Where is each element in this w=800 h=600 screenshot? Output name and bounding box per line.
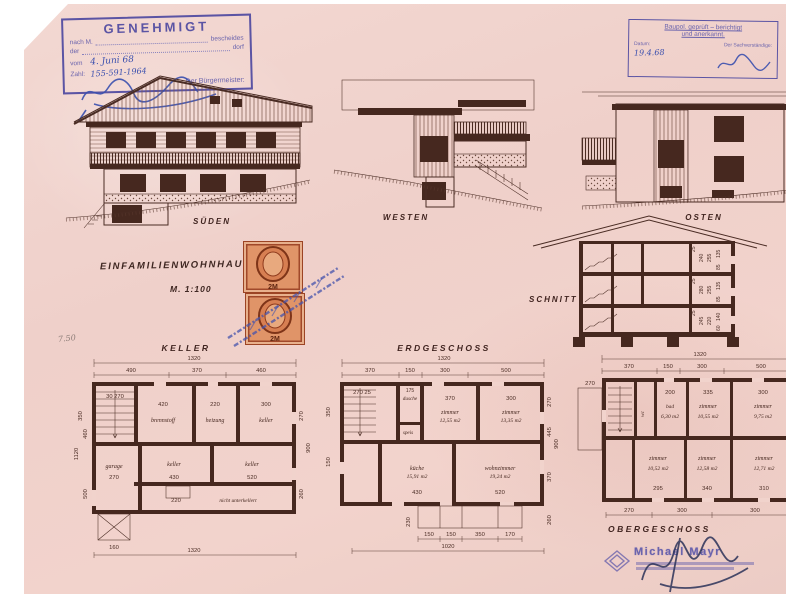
- attic-window: [210, 96, 220, 104]
- window-opening: [392, 502, 404, 506]
- window-opening: [292, 468, 296, 480]
- interior-wall: [689, 244, 692, 334]
- step: [166, 486, 190, 498]
- baupol-line2: und anerkannt.: [634, 30, 772, 39]
- balcony-railing: [454, 122, 526, 134]
- dim-label: 1120: [74, 448, 80, 460]
- dim-label: 460: [256, 368, 266, 374]
- window-opening: [540, 460, 544, 474]
- bottom-slab: [579, 332, 735, 337]
- wall: [92, 442, 296, 446]
- eave-band: [358, 108, 462, 115]
- wall: [378, 444, 382, 502]
- room-label: zimmer: [697, 456, 716, 462]
- floor-slab: [579, 304, 735, 308]
- dim-label: 1020: [442, 544, 455, 550]
- erdgeschoss-plan: ERDGESCHOSS 1320 370 150 300 500 270 25 …: [322, 342, 566, 572]
- room-label: zimmer: [648, 456, 667, 462]
- window: [136, 132, 156, 148]
- dim-label: 520: [247, 475, 257, 481]
- interior-wall: [641, 244, 644, 272]
- stairs: [608, 386, 632, 432]
- dim-label: 30 270: [106, 394, 124, 400]
- roof: [74, 76, 312, 122]
- facade: [616, 104, 784, 202]
- window-opening: [652, 498, 664, 502]
- room-label: zimmer: [753, 404, 772, 410]
- eave-band: [612, 104, 788, 110]
- architect-emblem-icon: [602, 548, 632, 574]
- drawing-scale: M. 1:100: [170, 284, 212, 294]
- wall: [134, 386, 138, 446]
- room-label: nicht unterkellert: [219, 498, 257, 504]
- east-elevation: OSTEN: [578, 82, 800, 224]
- window-opening: [292, 412, 296, 424]
- base-band: [454, 154, 526, 167]
- south-elevation: SÜDEN: [60, 62, 322, 232]
- basement-window: [660, 186, 682, 198]
- window-opening: [500, 502, 514, 506]
- dim-label: 520: [495, 490, 505, 496]
- section-label: SCHNITT: [529, 295, 578, 304]
- window-opening: [492, 382, 504, 386]
- wall: [794, 378, 798, 502]
- dim-label: 900: [554, 439, 560, 449]
- room-area: 12,58 m2: [697, 466, 718, 472]
- dim-label: 220: [210, 402, 220, 408]
- dim-label: 370: [624, 364, 634, 370]
- room-label: garage: [106, 464, 123, 470]
- window-opening: [340, 462, 344, 474]
- attic-floor-slab: [579, 241, 735, 244]
- wall: [634, 382, 637, 436]
- architect-stamp: Michael Mayr: [602, 544, 800, 596]
- dim-label: 295: [653, 486, 663, 492]
- door-opening: [440, 502, 452, 506]
- dim-label: 270: [624, 508, 634, 514]
- baupol-handwritten-date: 19.4.68: [634, 48, 665, 58]
- room-area: 12,71 m2: [754, 466, 775, 472]
- dim-label: 1320: [188, 356, 201, 362]
- dim-label: 1320: [438, 356, 451, 362]
- dim-label: 270 25: [353, 390, 371, 396]
- window: [106, 132, 126, 148]
- room-label: keller: [167, 462, 181, 468]
- sachverstaendiger-label: Der Sachverständige:: [724, 42, 772, 49]
- window-opening: [758, 498, 770, 502]
- wall: [134, 482, 296, 486]
- balcony: [578, 388, 602, 450]
- dim-label: 430: [169, 475, 179, 481]
- dim-line: [606, 512, 798, 518]
- window: [226, 132, 246, 148]
- window: [714, 116, 744, 142]
- dim-label: 270: [299, 411, 305, 421]
- dim-label: 430: [412, 490, 422, 496]
- terrace: [418, 506, 522, 528]
- balcony-slab: [454, 134, 530, 141]
- window-opening: [432, 382, 444, 386]
- window: [160, 174, 186, 192]
- wall: [686, 382, 689, 436]
- dim-label: 230: [406, 517, 412, 527]
- scan-canvas: GENEHMIGT nach M. bescheides der dorf vo…: [0, 0, 800, 600]
- window-opening: [731, 256, 735, 264]
- wall: [236, 386, 240, 442]
- dim-label: 25: [691, 246, 697, 252]
- dim-label: 170: [505, 532, 515, 538]
- dim-label: 220: [171, 498, 181, 504]
- wall: [452, 444, 456, 502]
- room-label: zimmer: [440, 410, 459, 416]
- genehmigt-line1-label: nach M.: [70, 39, 93, 47]
- wall: [138, 446, 142, 510]
- plan-title: ERDGESCHOSS: [397, 343, 491, 353]
- room-area: 12,55 m2: [440, 418, 461, 424]
- window-opening: [731, 288, 735, 296]
- dim-label: 490: [126, 368, 136, 374]
- dim-label: 25: [691, 310, 697, 316]
- ground-hatch: [334, 172, 542, 210]
- stoop-cross: [98, 514, 130, 540]
- dim-label: 135: [716, 281, 722, 290]
- balcony-slab: [582, 160, 616, 165]
- dim-label: 300: [750, 508, 760, 514]
- window: [658, 140, 684, 168]
- room-label: zimmer: [754, 456, 773, 462]
- balcony-railing: [582, 138, 616, 160]
- architect-signature: [630, 536, 760, 594]
- wall: [396, 386, 400, 440]
- sachverstaendiger-signature: [714, 52, 774, 78]
- room-label: wc: [640, 410, 646, 417]
- dim-label: 85: [716, 296, 722, 302]
- room-label: küche: [410, 466, 424, 472]
- dim-label: 200: [665, 390, 675, 396]
- room-label: keller: [245, 462, 259, 468]
- dim-label: 335: [703, 390, 713, 396]
- dim-label: 350: [326, 407, 332, 417]
- dim-label: 60: [716, 325, 722, 331]
- room-area: 13,35 m2: [501, 418, 522, 424]
- section-drawing: 25 240 255 135 85 25 280 255 135 85 25 2…: [521, 212, 783, 352]
- datum-label: Datum:: [634, 41, 650, 47]
- wall: [340, 440, 544, 444]
- room-area: 9,75 m2: [754, 414, 772, 420]
- dim-label: 310: [759, 486, 769, 492]
- keller-plan: KELLER 1320 490 370 460 30 270 bren: [74, 342, 314, 572]
- dim-label: 255: [707, 253, 713, 262]
- genehmigt-line2-label: der: [70, 48, 80, 55]
- left-wall: [579, 241, 583, 337]
- wall: [396, 422, 424, 425]
- window-opening: [794, 462, 798, 474]
- dim-label: 370: [365, 368, 375, 374]
- dim-label: 460: [83, 429, 89, 439]
- genehmigt-title: GENEHMIGT: [69, 18, 243, 38]
- window: [166, 132, 186, 148]
- ground-line: [582, 188, 800, 206]
- dim-label: 160: [109, 545, 119, 551]
- dim-label: 150: [446, 532, 456, 538]
- dim-label: 25: [691, 278, 697, 284]
- room-label: zimmer: [501, 410, 520, 416]
- dim-label: 1320: [188, 548, 201, 554]
- wall: [730, 440, 733, 498]
- terrace-steps: [440, 506, 498, 528]
- window-opening: [260, 382, 272, 386]
- wall: [632, 440, 635, 498]
- dim-label: 85: [716, 264, 722, 270]
- room-label: dusche: [403, 396, 418, 402]
- window-opening: [752, 378, 764, 382]
- dim-label: 150: [424, 532, 434, 538]
- dim-label: 300: [697, 364, 707, 370]
- dim-label: 370: [192, 368, 202, 374]
- window: [714, 156, 744, 182]
- room-label: wohnzimmer: [485, 466, 516, 472]
- base-band: [586, 176, 616, 190]
- window-opening: [702, 498, 714, 502]
- window: [196, 132, 216, 148]
- wall: [292, 382, 296, 514]
- plan-title: KELLER: [162, 343, 211, 353]
- dim-label: 270: [109, 475, 119, 481]
- dim-label: 135: [716, 249, 722, 258]
- room-area: 10,55 m2: [698, 414, 719, 420]
- dim-label: 350: [475, 532, 485, 538]
- eave-band: [86, 122, 302, 127]
- wall: [92, 510, 296, 514]
- genehmigt-line1-tail: bescheides: [211, 35, 244, 43]
- room-area: 15,91 m2: [407, 474, 428, 480]
- dim-label: 900: [306, 443, 312, 453]
- wall: [420, 386, 424, 440]
- window: [120, 174, 146, 192]
- attic-window: [232, 99, 242, 107]
- dim-label: 270: [585, 381, 595, 387]
- window: [256, 132, 276, 148]
- room-label: keller: [259, 418, 273, 424]
- dim-label: 140: [716, 312, 722, 321]
- roof-edge-lines: [582, 92, 800, 96]
- wall: [654, 382, 657, 436]
- dim-label: 260: [547, 515, 553, 525]
- window-opening: [208, 382, 218, 386]
- genehmigt-line2-tail: dorf: [233, 44, 244, 51]
- room-label: speis: [403, 430, 413, 436]
- floor-slab: [579, 272, 735, 276]
- dim-label: 1320: [694, 352, 707, 358]
- dim-label: 370: [547, 472, 553, 482]
- obergeschoss-plan: 1320 370 150 300 500 270 wc: [572, 342, 800, 562]
- dim-label: 300: [440, 368, 450, 374]
- south-label: SÜDEN: [193, 217, 231, 226]
- dim-label: 370: [445, 396, 455, 402]
- window-opening: [154, 382, 166, 386]
- garage-door-opening: [92, 490, 96, 506]
- window-opening: [540, 412, 544, 424]
- dim-label: 240: [699, 253, 705, 262]
- dim-label: 500: [501, 368, 511, 374]
- wall: [210, 446, 214, 482]
- balcony-railing: [90, 153, 300, 164]
- dim-label: 150: [326, 457, 332, 467]
- dim-label: 220: [707, 316, 713, 325]
- dim-label: 150: [405, 368, 415, 374]
- window: [420, 136, 448, 162]
- room-label: bad: [666, 404, 674, 410]
- window-opening: [794, 402, 798, 414]
- window-opening: [664, 378, 674, 382]
- dim-label: 150: [663, 364, 673, 370]
- dim-label: 340: [702, 486, 712, 492]
- dim-label: 175: [406, 388, 415, 394]
- dim-label: 500: [756, 364, 766, 370]
- wall: [730, 382, 733, 436]
- dim-label: 280: [699, 285, 705, 294]
- dim-label: 300: [261, 402, 271, 408]
- balcony-slab: [90, 164, 300, 169]
- dim-label: 270: [547, 397, 553, 407]
- wall: [684, 440, 687, 498]
- garage-door: [112, 205, 142, 223]
- dim-label: 445: [547, 427, 553, 437]
- room-label: zimmer: [698, 404, 717, 410]
- wall: [476, 386, 480, 440]
- dim-label: 300: [677, 508, 687, 514]
- dim-label: 255: [707, 285, 713, 294]
- window: [240, 174, 266, 192]
- dim-label: 300: [506, 396, 516, 402]
- blueprint-paper: GENEHMIGT nach M. bescheides der dorf vo…: [24, 4, 786, 594]
- room-area: 6,30 m2: [661, 414, 679, 420]
- dim-label: 300: [758, 390, 768, 396]
- window-opening: [700, 378, 712, 382]
- window: [200, 174, 226, 192]
- dim-label: 245: [699, 316, 705, 325]
- dim-label: 500: [83, 489, 89, 499]
- room-label: brennstoff: [151, 417, 176, 424]
- window-opening: [731, 316, 735, 324]
- plan-title: OBERGESCHOSS: [608, 524, 711, 534]
- room-label: heizung: [206, 418, 225, 424]
- dim-label: 260: [299, 489, 305, 499]
- wall: [192, 386, 196, 442]
- cancellation-stamp: [220, 242, 350, 350]
- west-label: WESTEN: [383, 213, 429, 222]
- dim-label: 350: [78, 411, 84, 421]
- balcony-door-opening: [602, 410, 606, 422]
- wall: [602, 436, 798, 440]
- interior-wall: [641, 276, 644, 304]
- eave-band-upper: [458, 100, 526, 107]
- room-area: 19,24 m2: [490, 474, 511, 480]
- room-area: 10,52 m2: [648, 466, 669, 472]
- dim-label: 420: [158, 402, 168, 408]
- west-elevation: WESTEN: [330, 74, 546, 226]
